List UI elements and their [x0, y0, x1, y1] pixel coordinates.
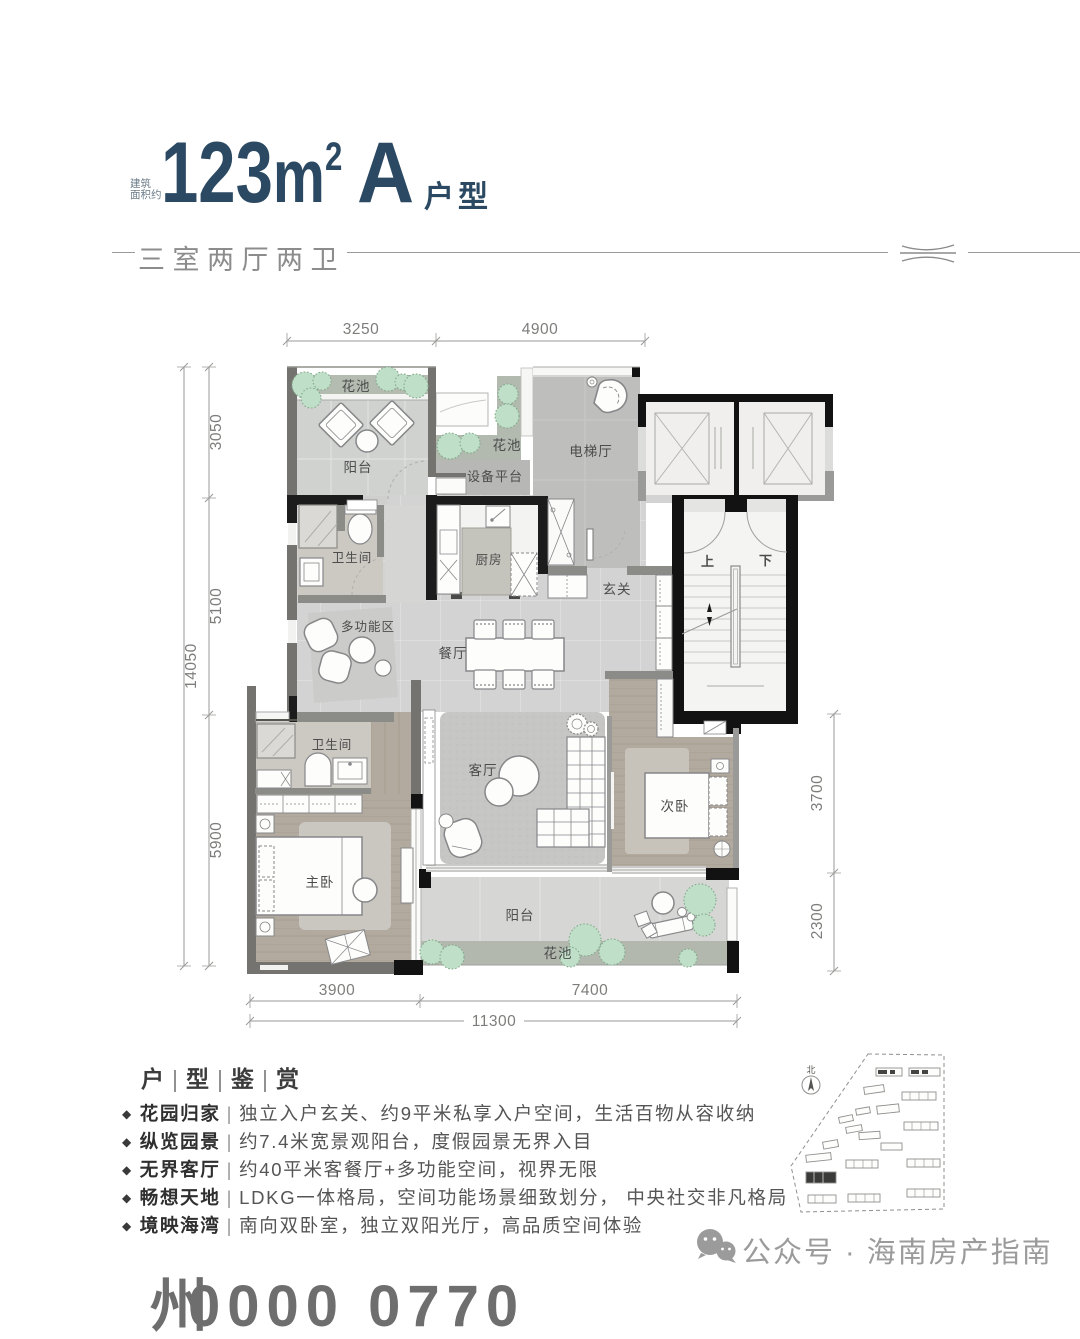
svg-text:14050: 14050: [183, 643, 200, 689]
svg-text:花池: 花池: [544, 946, 573, 961]
svg-text:厨房: 厨房: [475, 552, 502, 567]
svg-text:阳台: 阳台: [344, 460, 373, 475]
svg-text:上: 上: [701, 554, 715, 569]
svg-text:3250: 3250: [343, 321, 379, 338]
svg-text:5900: 5900: [208, 822, 225, 858]
svg-text:3900: 3900: [319, 982, 355, 999]
svg-text:次卧: 次卧: [661, 799, 690, 814]
svg-text:3050: 3050: [208, 414, 225, 450]
svg-text:客厅: 客厅: [469, 762, 498, 778]
svg-text:玄关: 玄关: [603, 581, 632, 597]
svg-text:阳台: 阳台: [506, 908, 535, 923]
svg-text:2300: 2300: [809, 903, 826, 939]
svg-text:花池: 花池: [342, 379, 371, 394]
svg-text:3700: 3700: [809, 775, 826, 811]
svg-text:电梯厅: 电梯厅: [569, 444, 613, 459]
svg-text:主卧: 主卧: [306, 875, 335, 890]
svg-text:11300: 11300: [472, 1013, 516, 1030]
svg-text:卫生间: 卫生间: [332, 551, 373, 565]
svg-text:餐厅: 餐厅: [439, 646, 468, 661]
svg-text:北: 北: [806, 1065, 815, 1075]
svg-text:设备平台: 设备平台: [467, 469, 523, 484]
svg-text:花池: 花池: [493, 438, 522, 453]
svg-text:4900: 4900: [522, 321, 558, 338]
svg-text:下: 下: [759, 553, 773, 568]
svg-text:卫生间: 卫生间: [312, 738, 353, 752]
svg-text:多功能区: 多功能区: [341, 620, 395, 634]
svg-text:7400: 7400: [572, 982, 608, 999]
svg-text:5100: 5100: [208, 588, 225, 624]
